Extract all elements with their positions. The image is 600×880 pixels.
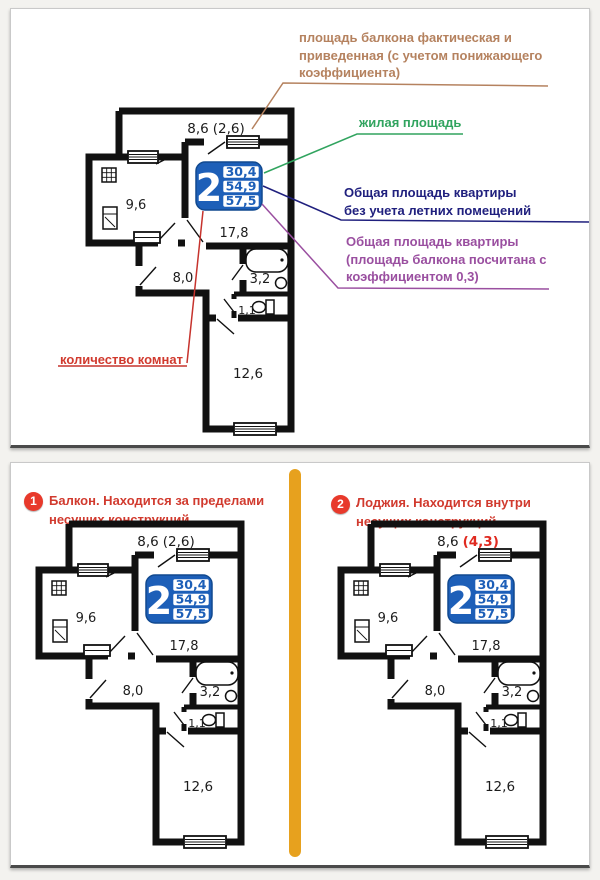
total-area-coef-value: 57,5 <box>226 193 257 208</box>
living-area-label: 17,8 <box>472 639 501 654</box>
living-area-value: 30,4 <box>478 577 509 592</box>
room-count-value: 2 <box>196 166 222 210</box>
room-count-value: 2 <box>448 579 474 623</box>
wc-area-label: 1,1 <box>490 717 508 730</box>
bath-area-label: 3,2 <box>250 272 271 287</box>
floor-plan-balcony: 8,6(2,6) 9,6 17,8 8,0 3,2 1,1 12,6 2 30,… <box>36 519 246 844</box>
bedroom-area-label: 12,6 <box>233 366 263 382</box>
hallway-area-label: 8,0 <box>173 271 194 286</box>
balcony-area-label: 8,6(4,3) <box>437 534 499 550</box>
stove-icon <box>354 581 368 595</box>
kitchen-sink-icon <box>355 620 369 642</box>
toilet-icon <box>518 713 526 727</box>
kitchen-area-label: 9,6 <box>126 198 147 213</box>
washbasin-icon <box>226 691 237 702</box>
kitchen-area-label: 9,6 <box>76 611 97 626</box>
explainer-panel: 8,6(2,6) 9,6 17,8 8,0 3,2 1,1 12,6 2 30,… <box>10 8 590 448</box>
washbasin-icon <box>276 278 287 289</box>
stove-icon <box>52 581 66 595</box>
wc-area-label: 1,1 <box>188 717 206 730</box>
badge-2: 2 <box>331 495 350 514</box>
comparison-panel: 1 Балкон. Находится за пределами несущих… <box>10 462 590 868</box>
hallway-area-label: 8,0 <box>123 684 144 699</box>
room-count-value: 2 <box>146 579 172 623</box>
area-info-box: 2 30,4 54,9 57,5 <box>196 162 262 210</box>
area-info-box: 2 30,4 54,9 57,5 <box>146 575 212 623</box>
total-area-value: 54,9 <box>176 592 207 607</box>
hallway-area-label: 8,0 <box>425 684 446 699</box>
room-count-note: количество комнат <box>60 351 183 369</box>
bedroom-area-label: 12,6 <box>183 779 213 795</box>
total-area-coef-value: 57,5 <box>176 606 207 621</box>
floor-plan-loggia: 8,6(4,3) 9,6 17,8 8,0 3,2 1,1 12,6 2 30,… <box>338 519 548 844</box>
bedroom-area-label: 12,6 <box>485 779 515 795</box>
total-area-value: 54,9 <box>226 179 257 194</box>
vertical-divider <box>289 469 301 857</box>
toilet-icon <box>216 713 224 727</box>
balcony-note: площадь балкона фактическая и приведенна… <box>299 29 542 82</box>
floor-plan-main: 8,6(2,6) 9,6 17,8 8,0 3,2 1,1 12,6 2 30,… <box>86 106 296 431</box>
bath-area-label: 3,2 <box>200 685 221 700</box>
total-area-value: 54,9 <box>478 592 509 607</box>
living-area-label: 17,8 <box>170 639 199 654</box>
toilet-icon <box>266 300 274 314</box>
kitchen-sink-icon <box>53 620 67 642</box>
total-with-coef-note: Общая площадь квартиры (площадь балкона … <box>346 233 546 286</box>
bath-area-label: 3,2 <box>502 685 523 700</box>
living-area-value: 30,4 <box>176 577 207 592</box>
stove-icon <box>102 168 116 182</box>
living-area-value: 30,4 <box>226 164 257 179</box>
wc-area-label: 1,1 <box>238 304 256 317</box>
total-no-summer-note: Общая площадь квартиры без учета летних … <box>344 184 531 219</box>
total-area-coef-value: 57,5 <box>478 606 509 621</box>
living-area-label: 17,8 <box>220 226 249 241</box>
living-area-note: жилая площадь <box>359 114 461 132</box>
balcony-area-label: 8,6(2,6) <box>187 121 245 137</box>
area-info-box: 2 30,4 54,9 57,5 <box>448 575 514 623</box>
washbasin-icon <box>528 691 539 702</box>
kitchen-sink-icon <box>103 207 117 229</box>
balcony-area-label: 8,6(2,6) <box>137 534 195 550</box>
kitchen-area-label: 9,6 <box>378 611 399 626</box>
badge-1: 1 <box>24 492 43 511</box>
